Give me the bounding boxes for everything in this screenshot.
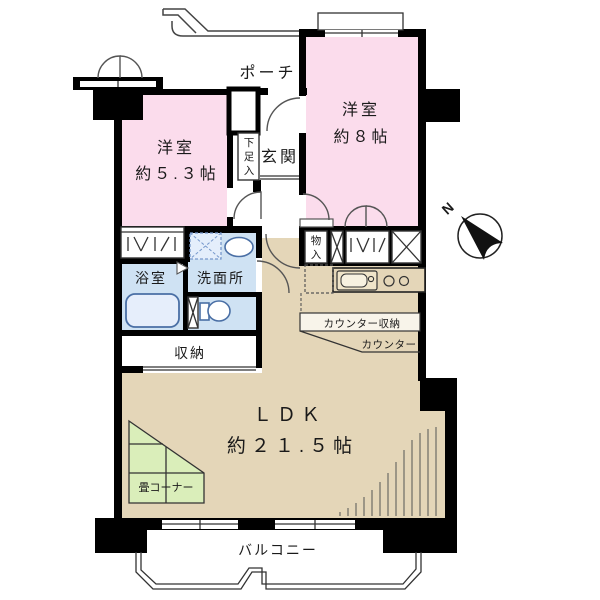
- western8-door-leaf: [300, 219, 333, 227]
- entrance-door-opening: [299, 96, 306, 133]
- washbasin: [225, 238, 253, 257]
- window-room8-outer: [318, 13, 403, 30]
- label-ldk-size: 約２１.５帖: [227, 435, 357, 457]
- room-entrance-hall: [259, 95, 299, 238]
- label-western53-name: 洋室: [157, 139, 195, 157]
- label-washroom: 洗面所: [197, 270, 245, 286]
- label-balcony: バルコニー: [238, 542, 318, 558]
- label-western8-name: 洋室: [342, 101, 380, 119]
- label-bath: 浴室: [135, 270, 167, 286]
- label-shoe-cabinet: 下足入: [244, 137, 255, 177]
- label-entrance: 玄関: [261, 148, 299, 166]
- label-porch: ポーチ: [239, 64, 296, 82]
- closet-room8: [346, 231, 389, 263]
- label-storage: 収納: [174, 345, 206, 361]
- kitchen-sink-bowl: [341, 274, 367, 287]
- floorplan: N ポーチ 玄関 下足入 洋室 約５.３帖 洋室 約８帖 物入 浴室 洗面所 収…: [0, 0, 600, 600]
- toilet-bowl: [208, 301, 230, 321]
- label-western8-size: 約８帖: [333, 128, 390, 146]
- label-western53-size: 約５.３帖: [135, 165, 218, 183]
- label-tatami-corner: 畳コーナー: [139, 481, 194, 494]
- porch-pillar: [229, 89, 258, 133]
- label-counter-storage: カウンター収納: [324, 317, 401, 330]
- label-ldk-name: ＬＤＫ: [253, 405, 325, 426]
- bathtub: [126, 294, 179, 327]
- room-ldk-notch: [420, 411, 445, 518]
- label-counter: カウンター: [362, 339, 417, 351]
